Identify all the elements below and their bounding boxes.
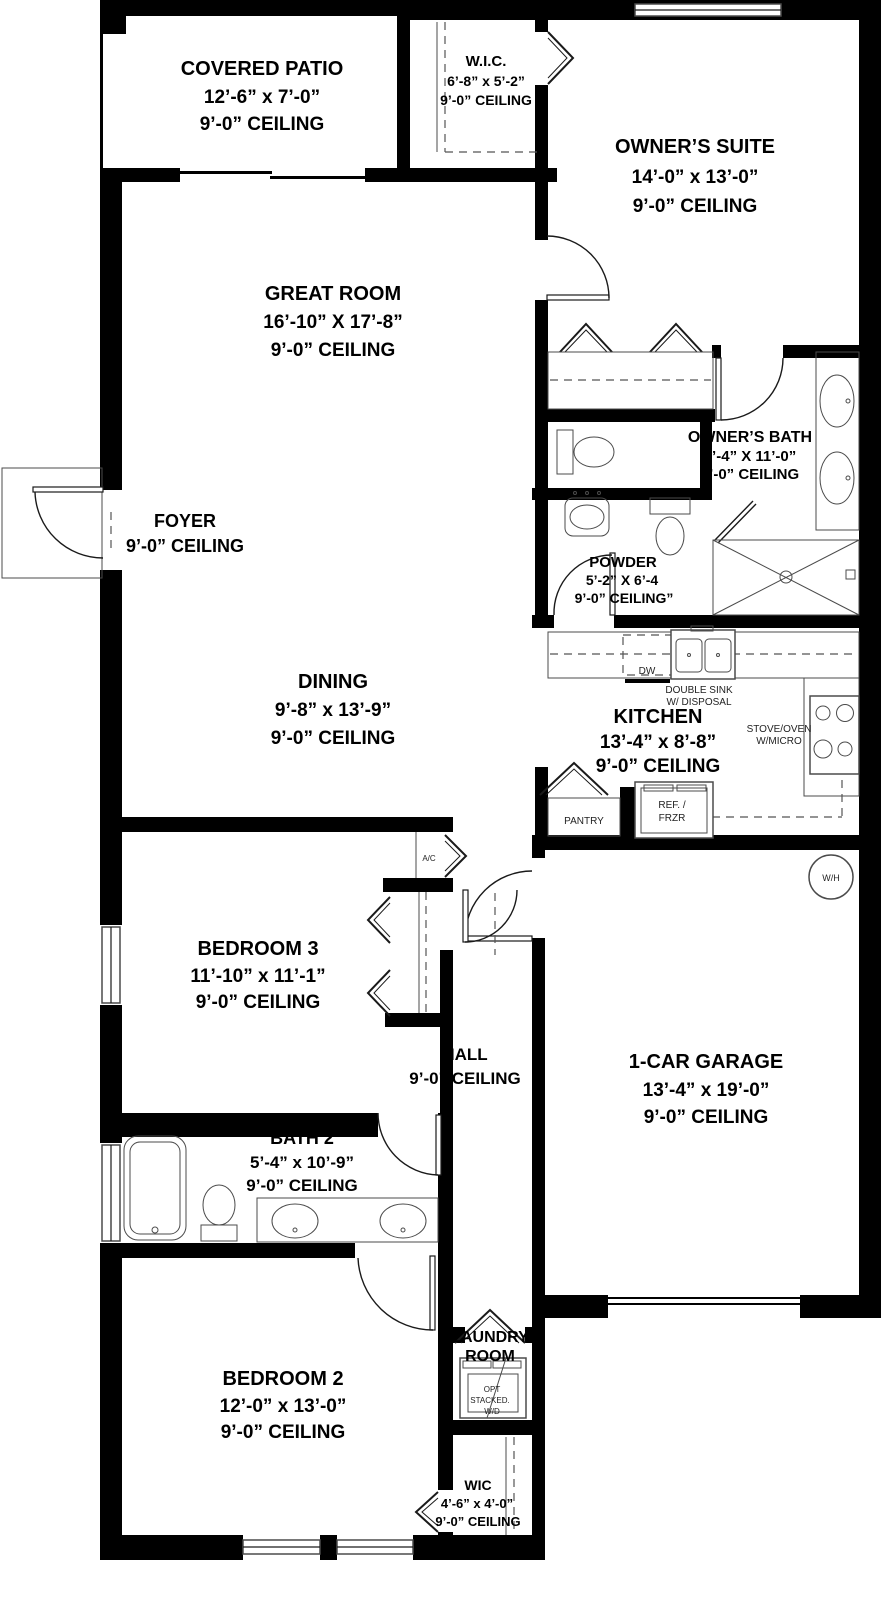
toilet-icon [656,517,684,555]
wall [100,1113,378,1137]
room-dims: 5’-2” X 6’-4 [586,572,659,588]
room-dims: 12’-0” x 13’-0” [220,1396,347,1417]
room-ceiling: 9’-0” CEILING [440,92,532,108]
wall [859,0,881,1318]
closet-bifold-door [560,324,612,352]
room-label-great-room: GREAT ROOM 16’-10” X 17’-8” 9’-0” CEILIN… [263,283,402,361]
room-label-bath-2: BATH 2 5’-4” x 10’-9” 9’-0” CEILING [246,1128,357,1195]
wall [532,1295,608,1318]
room-name: BEDROOM 3 [197,938,318,960]
room-ceiling: 9’-0” CEILING [246,1176,357,1195]
room-ceiling: 9’-0” CEILING [409,1069,520,1088]
owners-bath-door-leaf [716,358,721,420]
room-ceiling: 9’-0” CEILING” [575,590,674,606]
room-dims: 4’-6” x 4’-0” [441,1496,513,1511]
sink-icon [820,375,854,427]
garage-door-line [608,1297,800,1299]
ac-closet-bifold-door [445,835,466,877]
room-dims: 6’-8” x 5’-2” [447,73,525,89]
closet-bifold-door [650,324,702,352]
shower-door-leaf [718,504,756,543]
shower-door-leaf [715,501,753,540]
room-name: ROOM [465,1348,515,1365]
bedroom3-closet-bifold-inner [374,976,390,1010]
wall [100,168,122,490]
toilet-icon [203,1185,235,1225]
room-name: LAUNDRY [451,1329,529,1346]
sink-icon [380,1204,426,1238]
sliding-door-panel [270,176,367,179]
wall [413,1535,545,1560]
room-ceiling: 9’-0” CEILING [435,1514,520,1529]
room-label-dining: DINING 9’-8” x 13’-9” 9’-0” CEILING [271,671,396,749]
room-label-garage: 1-CAR GARAGE 13’-4” x 19’-0” 9’-0” CEILI… [629,1051,783,1128]
room-name: 1-CAR GARAGE [629,1051,783,1073]
entry-door-swing [35,492,103,558]
bathtub-icon [124,1136,186,1240]
sink-drain [293,1228,297,1232]
toilet-icon [574,437,614,467]
room-ceiling: 9’-0” CEILING [126,536,244,556]
vanity-counter [816,352,859,530]
room-name: BATH 2 [270,1128,334,1148]
floor-plan: COVERED PATIO 12’-6” x 7’-0” 9’-0” CEILI… [0,0,881,1600]
wall [397,168,557,182]
wall [100,1243,122,1535]
pantry-label: PANTRY [564,816,604,827]
tub-drain [152,1227,158,1233]
room-name: DINING [298,671,368,693]
wall [438,1137,453,1490]
room-dims: 14’-0” x 13’-0” [632,167,759,188]
wall [397,16,410,182]
room-dims: 13’-4” x 8’-8” [600,732,716,753]
wall [100,16,103,168]
wall [100,1243,355,1258]
room-name: WIC [464,1477,491,1493]
room-name: OWNER’S SUITE [615,136,775,158]
wall [320,1535,337,1560]
wall [532,938,545,1295]
walls [100,0,881,1560]
dishwasher-label: DW [639,666,656,677]
sink-basin [570,505,604,529]
room-label-hall: HALL 9’-0” CEILING [409,1045,520,1088]
sink-drain [401,1228,405,1232]
wall [100,570,122,573]
wall [535,85,548,240]
room-label-owners-bath: OWNER’S BATH 6’-4” X 11’-0” 9’-0” CEILIN… [688,429,812,483]
room-ceiling: 9’-0” CEILING [200,114,325,135]
sink-icon [272,1204,318,1238]
room-dims: 13’-4” x 19’-0” [643,1080,770,1101]
wall [100,0,410,16]
bedroom2-door-swing [358,1258,433,1330]
fridge-label: FRZR [659,813,686,824]
wall [100,16,126,34]
wall [438,1532,453,1560]
wall [532,1318,545,1560]
wic-bifold-door-inner [548,38,567,78]
room-label-covered-patio: COVERED PATIO 12’-6” x 7’-0” 9’-0” CEILI… [181,58,344,135]
stove-label: W/MICRO [756,736,802,747]
room-label-foyer: FOYER 9’-0” CEILING [126,511,244,556]
entry-door-leaf [33,487,103,492]
bedroom3-closet-bifold [368,970,390,1016]
room-name: KITCHEN [614,706,703,728]
toilet-icon [650,498,690,514]
room-name: COVERED PATIO [181,58,344,80]
wall [440,950,453,1113]
room-name: OWNER’S BATH [688,429,812,446]
toilet-tank [201,1225,237,1241]
bedroom3-closet-bifold-inner [374,903,390,937]
sink-drain [846,399,850,403]
closet-box [548,352,713,409]
ac-closet-bifold-door-inner [445,841,460,871]
room-ceiling: 9’-0” CEILING [644,1107,769,1128]
entry-porch [2,468,102,578]
room-name: FOYER [154,511,216,531]
floor-plan-drawing: COVERED PATIO 12’-6” x 7’-0” 9’-0” CEILI… [0,0,881,1600]
owners-suite-door-leaf [547,295,609,300]
wall [383,878,453,892]
garage-door-leaf [465,936,532,941]
washer-dryer-label: OPT [484,1385,501,1394]
bedroom3-closet-bifold [368,897,390,943]
room-ceiling: 9’-0” CEILING [271,340,396,361]
room-label-owners-suite: OWNER’S SUITE 14’-0” x 13’-0” 9’-0” CEIL… [615,136,775,217]
wall [535,16,548,32]
room-name: HALL [442,1045,487,1064]
room-ceiling: 9’-0” CEILING [701,466,799,483]
wall [100,168,180,182]
bedroom3-door-swing [465,890,517,942]
dishwasher-front [625,679,670,683]
wall [800,1295,881,1318]
shower-head [846,570,855,579]
room-ceiling: 9’-0” CEILING [196,992,321,1013]
wall [532,615,554,628]
room-dims: 11’-10” x 11’-1” [190,966,325,987]
room-label-bedroom-2: BEDROOM 2 12’-0” x 13’-0” 9’-0” CEILING [220,1368,347,1443]
room-label-powder: POWDER 5’-2” X 6’-4 9’-0” CEILING” [575,554,674,606]
room-name: POWDER [589,554,657,571]
wall [535,409,715,422]
room-dims: 16’-10” X 17’-8” [263,312,402,333]
room-name: GREAT ROOM [265,283,401,305]
bathtub-inner [130,1142,180,1234]
room-dims: 5’-4” x 10’-9” [250,1153,354,1172]
toilet-icon [557,430,573,474]
room-label-kitchen: KITCHEN 13’-4” x 8’-8” 9’-0” CEILING [596,706,721,777]
fixtures [111,22,859,1535]
garage-door-line [608,1303,800,1305]
sink-icon [565,498,609,536]
owners-suite-door-swing [547,236,609,298]
room-dims: 9’-8” x 13’-9” [275,700,391,721]
sink-icon [820,452,854,504]
washer-dryer-label: STACKED. [470,1396,509,1405]
wall [100,572,122,925]
room-ceiling: 9’-0” CEILING [633,196,758,217]
wall [438,1420,545,1435]
bath2-door-leaf [436,1115,441,1175]
room-ceiling: 9’-0” CEILING [596,756,721,777]
room-name: W.I.C. [466,53,507,70]
wall [100,817,453,832]
bath2-door-swing [378,1113,438,1175]
room-label-wic-owners: W.I.C. 6’-8” x 5’-2” 9’-0” CEILING [440,53,532,108]
double-sink-label: DOUBLE SINK [665,685,733,696]
room-name: BEDROOM 2 [222,1368,343,1390]
double-sink-label: W/ DISPOSAL [666,697,731,708]
wall [620,787,635,840]
wall [535,767,548,837]
garage-door-swing [465,871,532,938]
stove-label: STOVE/OVEN [747,724,812,735]
wall [614,615,859,628]
bedroom3-door-leaf [463,890,468,942]
wall [535,300,548,628]
owners-bath-door-swing [721,358,783,420]
ac-label: A/C [422,854,436,863]
sink-drain [846,476,850,480]
room-label-bedroom-3: BEDROOM 3 11’-10” x 11’-1” 9’-0” CEILING [190,938,325,1013]
sliding-door-panel [177,171,272,174]
washer-dryer-label: W/D [484,1407,500,1416]
bedroom2-door-leaf [430,1256,435,1330]
wall [532,850,545,858]
wic-bifold-door [548,32,573,84]
room-ceiling: 9’-0” CEILING [221,1422,346,1443]
room-dims: 12’-6” x 7’-0” [204,87,320,108]
fridge-label: REF. / [658,800,685,811]
room-dims: 6’-4” X 11’-0” [704,448,797,465]
wall [100,1535,243,1560]
water-heater-label: W/H [822,873,840,883]
room-ceiling: 9’-0” CEILING [271,728,396,749]
